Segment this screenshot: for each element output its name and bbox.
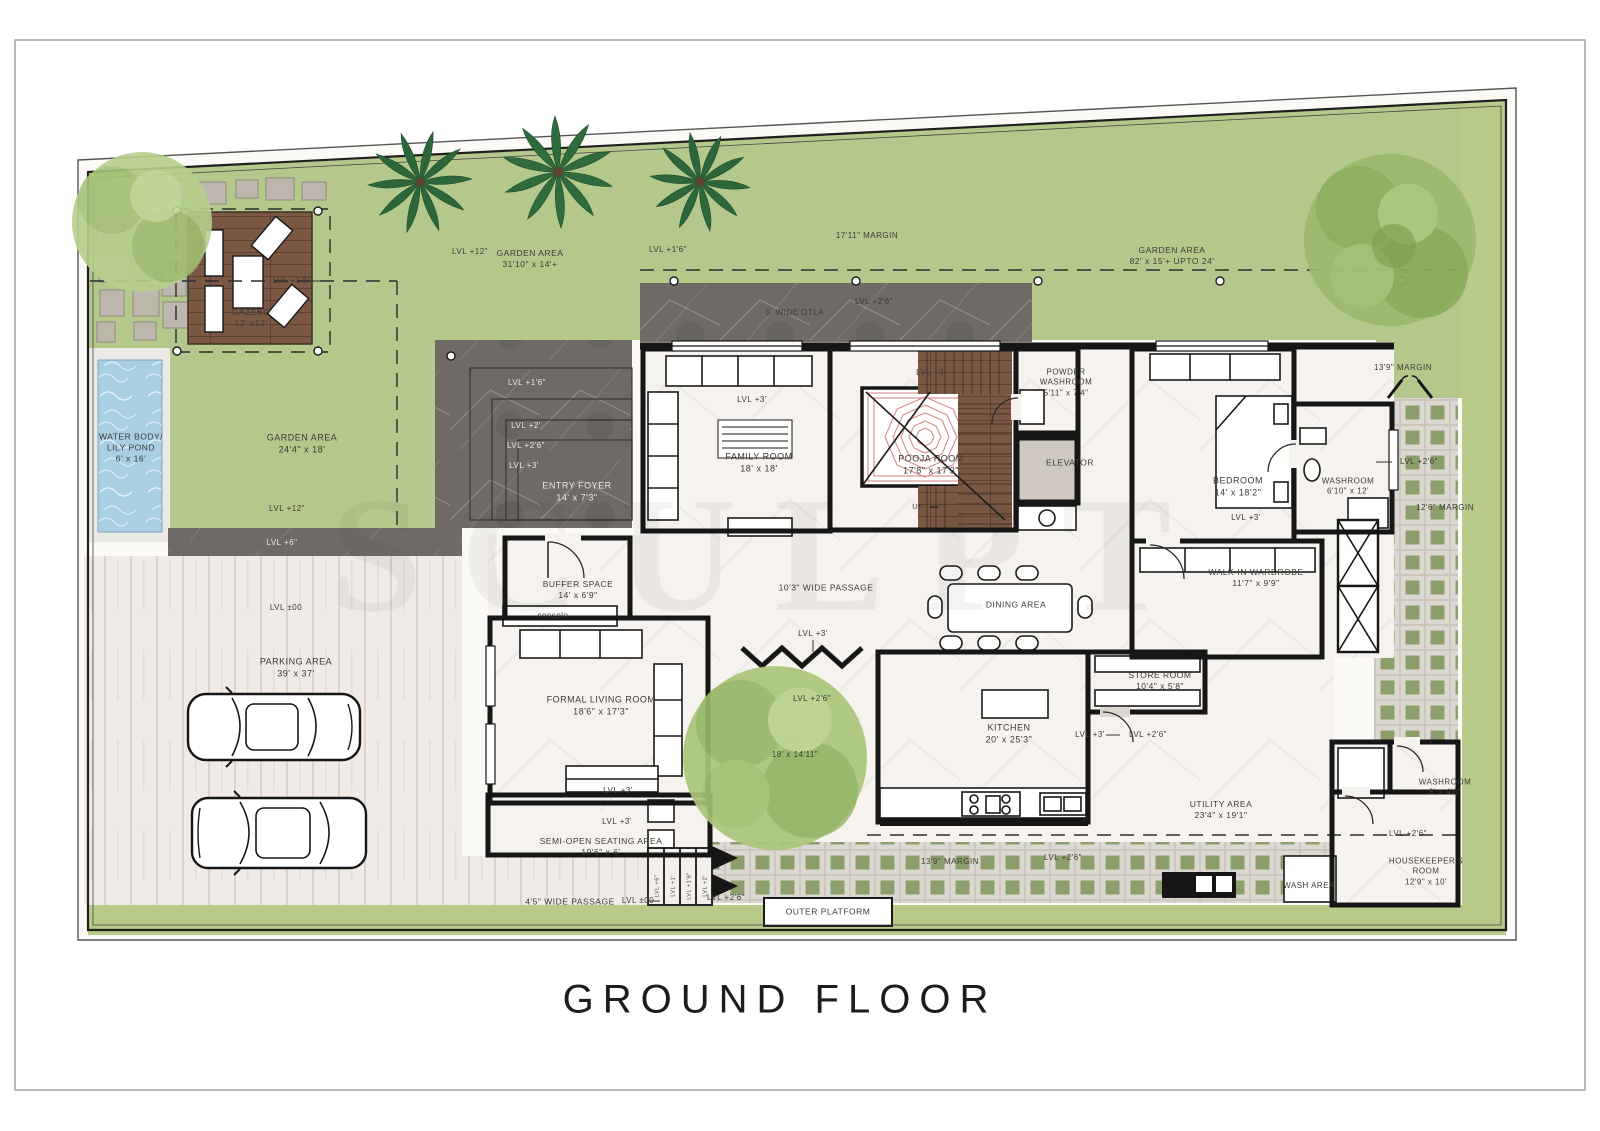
label-elevator: ELEVATOR [1046, 457, 1094, 468]
label-lvl26-bottom: LVL +2'6" [1044, 853, 1082, 863]
label-lvl3-semi: LVL +3' [602, 817, 632, 827]
label-margin-139-right: 13'9" MARGIN [1374, 363, 1432, 373]
label-housekeeper: HOUSEKEEPER'S ROOM 12'9" x 10' [1389, 856, 1463, 887]
label-utility: UTILITY AREA 23'4" x 19'1" [1190, 799, 1253, 821]
label-lvl3-court: LVL +3' [798, 629, 828, 639]
label-otla: 5' WIDE OTLA [766, 308, 824, 318]
label-lvl2-steps: LVL +2' [511, 421, 541, 431]
label-parking: PARKING AREA 39' x 37' [260, 656, 332, 679]
label-dining: DINING AREA [986, 599, 1046, 610]
label-margin-126: 12'6" MARGIN [1416, 503, 1474, 513]
label-semi-open: SEMI-OPEN SEATING AREA 19'6" x 6' [540, 836, 663, 858]
label-margin-139-bottom: 13'9" MARGIN [921, 857, 979, 867]
label-powder-washroom: POWDER WASHROOM 5'11" x 7'4" [1040, 367, 1093, 398]
label-lvl26-court: LVL +2'6" [793, 694, 831, 704]
label-garden-area-top: GARDEN AREA 31'10" x 14'+ [497, 248, 564, 270]
label-kitchen: KITCHEN 20' x 25'3" [986, 722, 1033, 745]
label-lvl12-top: LVL +12" [452, 247, 488, 257]
label-buffer: BUFFER SPACE 14' x 6'9" [543, 579, 614, 601]
floor-plan-sheet: SCULPT LVL +1'6"GAZEBO 12' x12'WATER BOD… [0, 0, 1600, 1131]
label-entry-foyer: ENTRY FOYER 14' x 7'3" [542, 480, 611, 503]
label-lvl3-steps: LVL +3' [509, 461, 539, 471]
label-lvl3-living: LVL +3' [603, 786, 633, 796]
label-step-b: LVL +1' [670, 875, 677, 897]
label-lvl6-walkway: LVL +6" [266, 538, 297, 548]
label-lvl26-otla: LVL +2'6" [855, 297, 893, 307]
label-lvl26-hk: LVL +2'6" [1389, 829, 1427, 839]
label-lvl00-parking: LVL ±00 [270, 603, 302, 613]
label-lvl3-family: LVL +3' [737, 395, 767, 405]
label-gazebo: GAZEBO 12' x12' [232, 307, 270, 329]
label-lvl12-left: LVL +12" [269, 504, 305, 514]
label-lvl26-steps-out: LVL +2'6" [707, 893, 745, 903]
labels-layer: LVL +1'6"GAZEBO 12' x12'WATER BODY/ LILY… [0, 0, 1600, 1131]
label-passage-45: 4'5" WIDE PASSAGE [525, 896, 615, 907]
page-title: GROUND FLOOR [563, 978, 998, 1023]
label-passage: 10'3" WIDE PASSAGE [779, 582, 874, 593]
label-console: console [537, 611, 568, 621]
label-step-c: LVL +1'6" [686, 872, 693, 900]
label-lvl3-pooja: LVL +3 [916, 368, 944, 378]
label-step-a: LVL +6" [654, 875, 661, 897]
label-washroom-hk: WASHROOM 8' x 4'6" [1419, 778, 1472, 799]
label-lvl26-steps: LVL +2'6" [507, 441, 545, 451]
label-lvl-gazebo: LVL +1'6" [273, 276, 311, 286]
label-wardrobe: WALK-IN WARDROBE 11'7" x 9'9" [1208, 567, 1303, 589]
label-lvl3-bedroom: LVL +3' [1231, 513, 1261, 523]
label-water-body: WATER BODY/ LILY POND 6' x 16' [99, 431, 163, 464]
label-garden-area-left: GARDEN AREA 24'4" x 18' [267, 432, 338, 455]
label-lvl3-kitchen: LVL +3' [1075, 730, 1105, 740]
label-lvl16-steps: LVL +1'6" [508, 378, 546, 388]
label-washroom-bed: WASHROOM 6'10" x 12' [1322, 477, 1375, 498]
label-formal-living: FORMAL LIVING ROOM 18'6" x 17'3" [547, 694, 656, 717]
label-lvl26-margin-right: LVL +2'6" [1400, 457, 1438, 467]
label-lvl16-top: LVL +1'6" [649, 245, 687, 255]
label-wash-area: WASH AREA [1283, 881, 1335, 891]
label-step-d: LVL +2' [702, 875, 709, 897]
label-store-room: STORE ROOM 10'4" x 5'8" [1129, 670, 1192, 692]
label-margin-1711: 17'11" MARGIN [836, 231, 898, 241]
label-garden-area-right: GARDEN AREA 82' x 15'+ UPTO 24' [1130, 245, 1215, 267]
label-up: UP [912, 502, 923, 512]
label-outer-platform: OUTER PLATFORM [786, 906, 871, 917]
label-lvl00-passage: LVL ±00 [622, 896, 654, 906]
label-lvl26-kitchen: LVL +2'6" [1129, 730, 1167, 740]
label-court-size: 18' x 14'11" [772, 750, 818, 760]
label-pooja-room: POOJA ROOM 17'8" x 17'3" [898, 453, 964, 476]
label-family-room: FAMILY ROOM 18' x 18' [725, 451, 792, 474]
label-bedroom: BEDROOM 14' x 18'2" [1213, 475, 1263, 498]
